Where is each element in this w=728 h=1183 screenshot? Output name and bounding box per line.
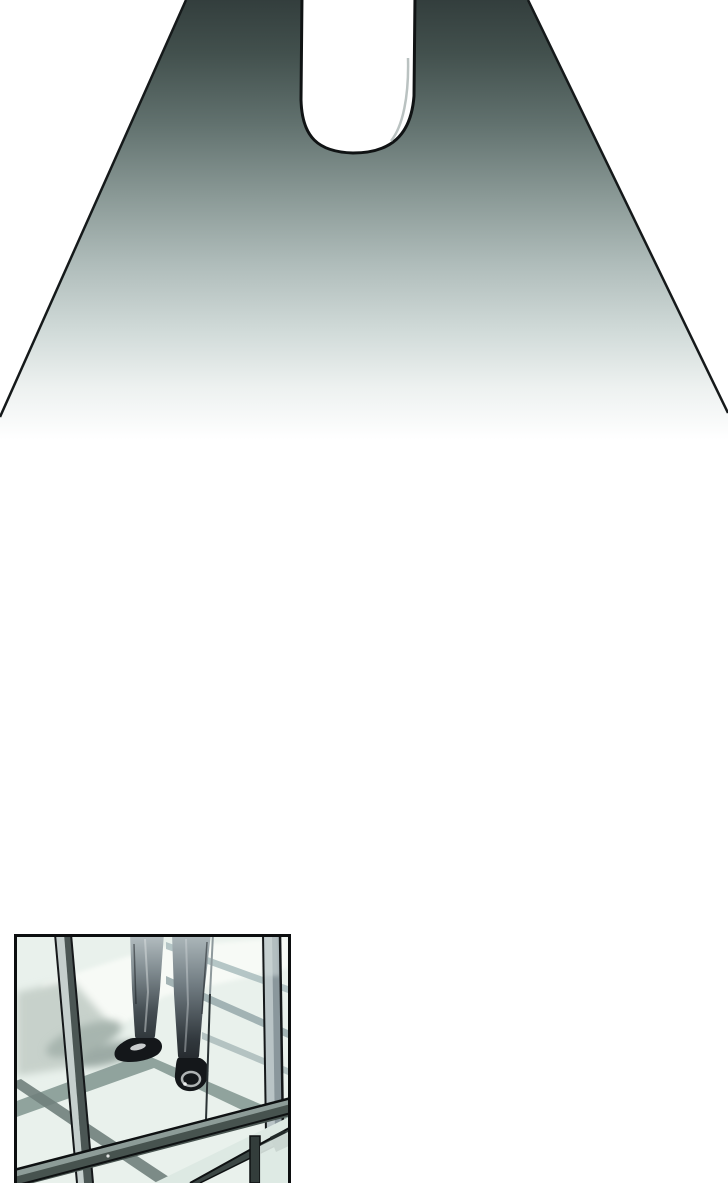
light-beam-artwork	[0, 0, 728, 440]
bolt-highlight	[106, 1154, 109, 1157]
glass-floor-panel	[14, 934, 291, 1183]
comic-page	[0, 0, 728, 1183]
